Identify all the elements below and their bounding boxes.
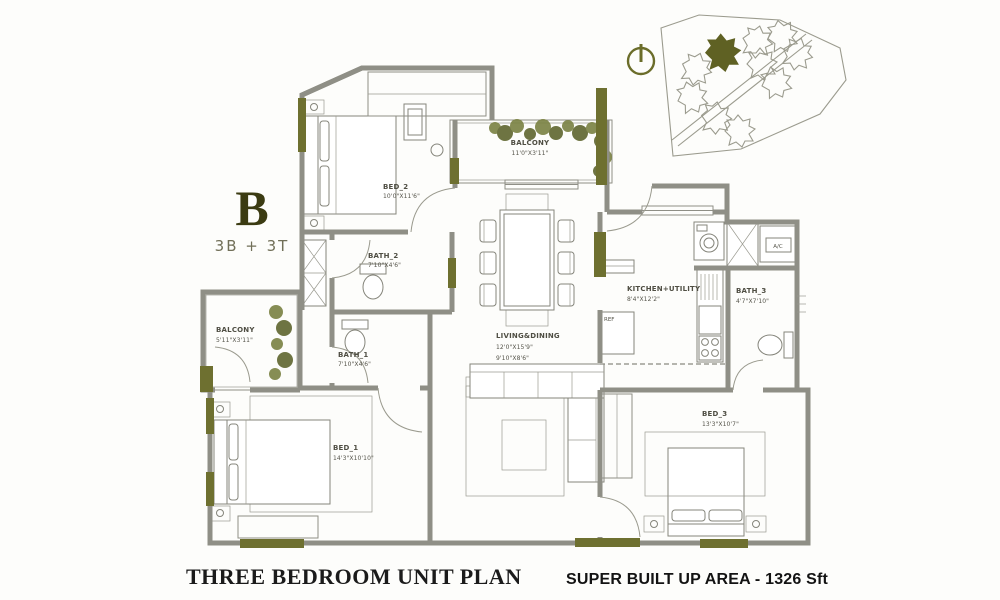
super-built-up-area: SUPER BUILT UP AREA - 1326 Sft [566,571,828,589]
area-value: 1326 Sft [765,571,828,588]
unit-configuration: 3B + 3T [204,237,300,255]
plan-title: THREE BEDROOM UNIT PLAN [186,564,522,590]
bed1-furniture [210,402,330,538]
balcony-left-dim: 5'11"X3'11" [216,337,253,344]
sofa-set [466,364,604,482]
kitchen-dim: 8'4"X12'2" [627,296,660,303]
living-center-table [502,420,546,470]
bath1-toilet [342,320,368,354]
bed1-dim: 14'3"X10'10" [333,455,374,462]
balcony-top-plants [489,119,612,177]
bed3-dim: 13'3"X10'7" [702,421,739,428]
compass-icon [628,44,654,74]
living-dim1: 12'0"X15'9" [496,344,533,351]
living-dim2: 9'10"X8'6" [496,355,529,362]
living-rug [466,386,564,496]
balcony-left-plants [269,305,293,380]
dining-set [480,194,574,326]
living-name: LIVING&DINING [496,332,560,340]
bath1-name: BATH_1 [338,351,368,359]
bed2-furniture [304,72,486,230]
balcony-top-dim: 11'0"X3'11" [512,150,549,157]
bath3-dim: 4'7"X7'10" [736,298,769,305]
bath3-toilet [758,332,793,358]
highlighted-building [706,34,741,71]
bath1-dim: 7'10"X4'6" [338,361,371,368]
bed2-dim: 10'0"X11'6" [383,193,420,200]
floorplan-page: BED_2 10'0"X11'6" BALCONY 11'0"X3'11" BA… [0,0,1000,600]
bath2-toilet [360,264,386,299]
bed2-name: BED_2 [383,183,408,191]
ac-label: A/C [773,244,783,250]
bath3-name: BATH_3 [736,287,766,295]
bath2-name: BATH_2 [368,252,398,260]
bed1-tv-unit [238,516,318,538]
utility-duct [727,222,758,266]
kitchen-window [642,206,713,215]
duct-shaft [302,240,326,306]
bed3-name: BED_3 [702,410,727,418]
washing-machine [694,222,724,260]
area-label: SUPER BUILT UP AREA - [566,571,760,588]
floorplan-drawing: BED_2 10'0"X11'6" BALCONY 11'0"X3'11" BA… [0,0,1000,600]
balcony-top-name: BALCONY [511,139,550,147]
unit-identifier: B 3B + 3T [204,183,300,255]
balcony-left-name: BALCONY [216,326,255,334]
bed3-furniture [602,394,766,536]
site-key-plan [661,15,846,156]
bed1-name: BED_1 [333,444,358,452]
unit-letter: B [204,183,300,233]
ref-label: REF [604,317,614,323]
bath2-dim: 7'10"X4'6" [368,262,401,269]
kitchen-name: KITCHEN+UTILITY [627,285,701,293]
